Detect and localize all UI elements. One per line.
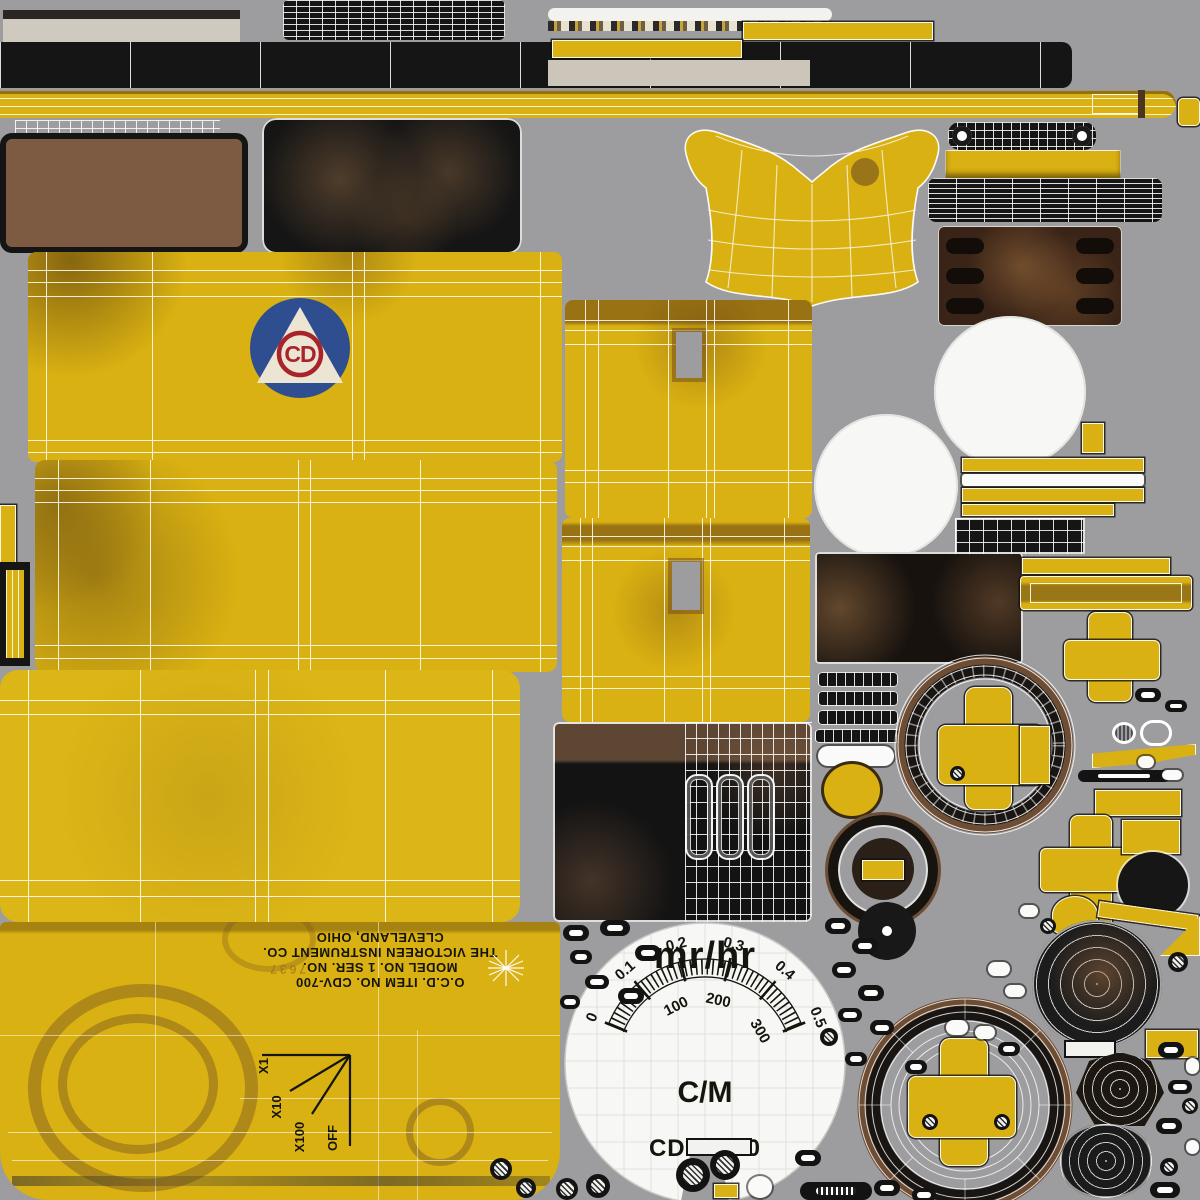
screw: [1040, 918, 1056, 934]
strip-right-3: [1095, 790, 1181, 816]
rivet-white: [988, 962, 1010, 976]
holder-slot: [1076, 238, 1114, 254]
rivet-white: [946, 1020, 968, 1035]
rivet-white: [1186, 1058, 1199, 1074]
case-panel-5: [562, 518, 810, 722]
selector-switch-legend: X1 X10 X100 OFF: [0, 922, 560, 1200]
yellow-bit: [714, 1184, 738, 1198]
slot-pill-black: [1078, 770, 1170, 782]
case-panel-3: [0, 670, 520, 922]
screw-pill: [1150, 1182, 1180, 1198]
screw-pill: [998, 1042, 1020, 1056]
screw: [556, 1178, 578, 1200]
polygon-cap: [1076, 1052, 1164, 1126]
screw-pill: [795, 1150, 821, 1166]
strap-wire-box: [1092, 94, 1144, 114]
strip-dark-band-top: [3, 10, 240, 19]
panel-battery-compartment: [553, 722, 812, 922]
screw: [1182, 1098, 1198, 1114]
screw-pill: [874, 1180, 900, 1196]
screw-pill: [600, 920, 630, 936]
screw-pill: [1168, 1080, 1192, 1094]
grid-box-mid: [955, 518, 1085, 554]
panel-grunge-right: [815, 552, 1023, 664]
screw-pill: [1158, 1042, 1184, 1058]
dial-mode-label: C/M: [678, 1076, 733, 1109]
strap-yellow-long: [0, 90, 1176, 118]
band-dark-long: [0, 42, 1072, 88]
sphere-island-1: [934, 316, 1086, 468]
handle-bar-lower: [552, 40, 742, 58]
wrench-eye: [1140, 720, 1172, 746]
switch-label-x1: X1: [256, 1058, 271, 1074]
vent-bar-wide: [815, 729, 900, 743]
switch-label-off: OFF: [325, 1125, 340, 1151]
switch-label-x10: X10: [269, 1095, 284, 1118]
logo-monogram: CD: [284, 341, 316, 367]
panel-probe-holder: [938, 226, 1122, 326]
screw: [676, 1158, 710, 1192]
battery-slot: [747, 774, 775, 860]
holder-slot: [1076, 298, 1114, 314]
bar-thick-right: [1020, 576, 1192, 610]
screw: [950, 766, 965, 781]
edge-sliver-1: [0, 505, 16, 563]
sphere-island-2: [814, 414, 958, 558]
rivet-white: [975, 1026, 995, 1039]
strip-stack-4: [962, 504, 1114, 516]
edge-sliver-2: [0, 562, 30, 666]
screw-pill: [825, 918, 851, 934]
screw-pill: [832, 962, 856, 978]
eyelet-left: [952, 126, 972, 146]
panel-black-grunge: [262, 118, 522, 254]
screw: [516, 1178, 536, 1198]
strap-buckle: [948, 122, 1096, 150]
rivet-white: [1020, 905, 1038, 917]
screw: [586, 1174, 610, 1198]
vent-bar: [818, 691, 898, 706]
wire-inset: [1030, 583, 1182, 603]
strap-end-nub: [1178, 98, 1200, 126]
vent-bar: [818, 710, 898, 725]
small-grid-rect: [1082, 423, 1104, 453]
bar-yellow-right: [945, 150, 1121, 180]
knob-cross-2-h: [1064, 640, 1160, 680]
screw-pill: [1156, 1118, 1182, 1134]
screw: [710, 1150, 740, 1180]
screw: [994, 1114, 1010, 1130]
screw: [922, 1114, 938, 1130]
housing-shell-island: [672, 110, 952, 308]
grille-pill: [818, 746, 894, 766]
strip-stack-2: [962, 474, 1144, 486]
screw-pill: [845, 1052, 867, 1066]
screw: [490, 1158, 512, 1180]
vent-bar: [818, 672, 898, 687]
knob-sphere-yellow: [824, 764, 880, 816]
screw-pill: [563, 925, 589, 941]
strip-mesh-top: [283, 0, 505, 40]
rivet-white: [1005, 985, 1025, 997]
uv-texture-atlas: CD: [0, 0, 1200, 1200]
screw-pill: [560, 995, 580, 1009]
strap-divider: [1138, 90, 1145, 118]
panel-brown-top-left: [0, 133, 248, 253]
strip-stack-3: [962, 488, 1144, 502]
screw-pill: [838, 1008, 862, 1022]
handle-bar-upper: [743, 22, 933, 40]
case-panel-4: [565, 300, 812, 518]
center-dot: [882, 926, 892, 936]
latch-window: [672, 562, 700, 610]
uv-pole-starburst: [486, 948, 526, 988]
screw: [1160, 1158, 1178, 1176]
holder-slot: [946, 238, 984, 254]
screw-pill: [1135, 688, 1161, 702]
screw-pill: [905, 1060, 927, 1074]
strip-light-mesh: [548, 60, 810, 86]
latch-window: [676, 332, 702, 378]
screw: [1168, 952, 1188, 972]
screw-pill: [858, 985, 884, 1001]
strip-white: [548, 8, 832, 21]
screw-pill: [635, 945, 661, 961]
screw-pill: [870, 1020, 894, 1035]
screw-pill: [912, 1188, 936, 1200]
strip-stack-1: [962, 458, 1144, 472]
sliver-core: [6, 570, 24, 658]
screw-pill: [1165, 700, 1187, 712]
wrench-eye: [1112, 722, 1136, 744]
holder-slot: [946, 268, 984, 284]
rivet-white: [1162, 770, 1182, 780]
wrench-outline: [1112, 718, 1174, 748]
civil-defense-logo: CD: [248, 296, 352, 400]
rivet-white: [1186, 1140, 1199, 1154]
rivet-white: [1138, 756, 1154, 768]
screw-pill: [800, 1182, 872, 1200]
rivet-white: [748, 1176, 772, 1198]
holder-slot: [946, 298, 984, 314]
holder-slot: [1076, 268, 1114, 284]
strip-light-grid: [3, 19, 240, 44]
eyelet-right: [1072, 126, 1092, 146]
ring-small-window: [862, 860, 904, 880]
strip-right-1: [1022, 558, 1170, 574]
small-part-left: [1020, 726, 1050, 784]
screw-pill: [570, 950, 592, 964]
grid-strip-right: [928, 178, 1162, 222]
screw-pill: [852, 938, 878, 954]
switch-label-x100: X100: [292, 1122, 307, 1152]
screw-pill: [585, 975, 609, 989]
screw: [820, 1028, 838, 1046]
screw-pill: [618, 988, 644, 1004]
case-panel-2: [35, 460, 557, 672]
battery-slot: [685, 774, 713, 860]
rect-right-small: [1122, 820, 1180, 854]
battery-slot: [716, 774, 744, 860]
